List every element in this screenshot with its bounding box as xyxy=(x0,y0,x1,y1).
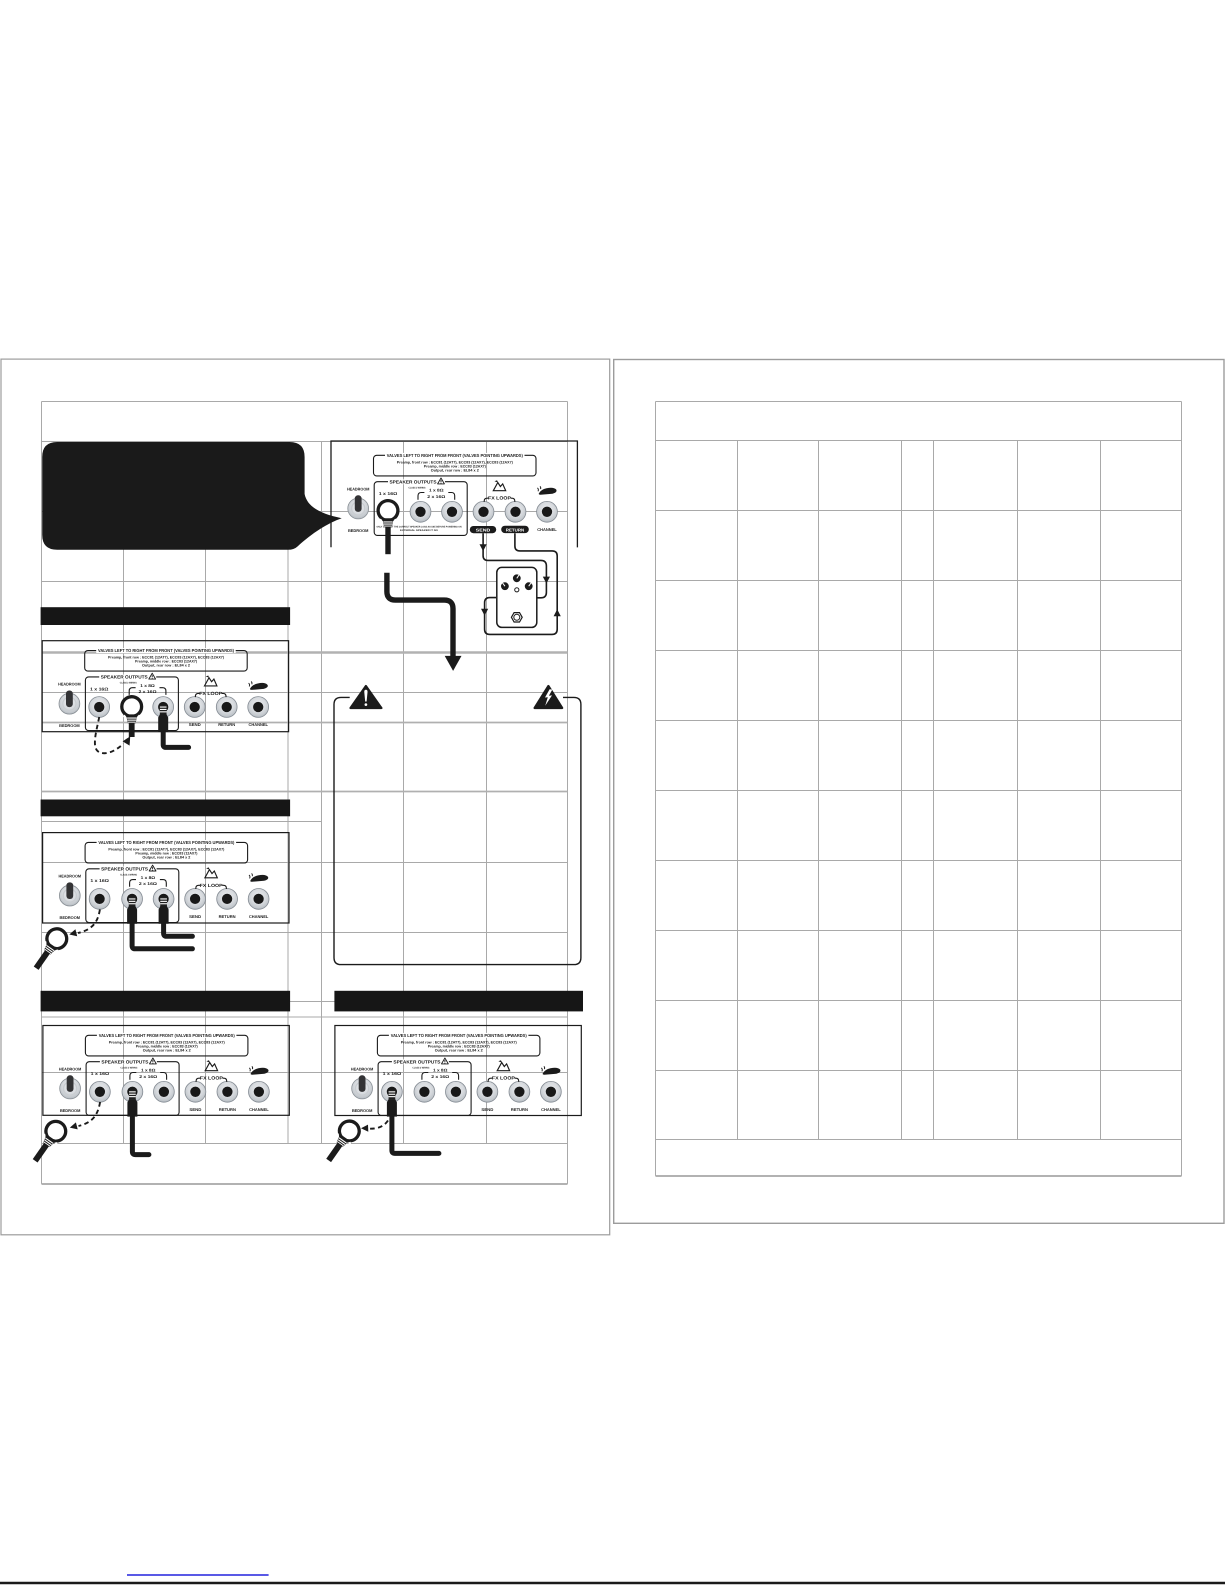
svg-text:CHANNEL: CHANNEL xyxy=(537,527,557,532)
svg-text:SEND: SEND xyxy=(476,528,491,533)
svg-text:RETURN: RETURN xyxy=(506,528,525,533)
svg-text:EXTERNAL SPEAKER IT NO: EXTERNAL SPEAKER IT NO xyxy=(400,529,438,532)
